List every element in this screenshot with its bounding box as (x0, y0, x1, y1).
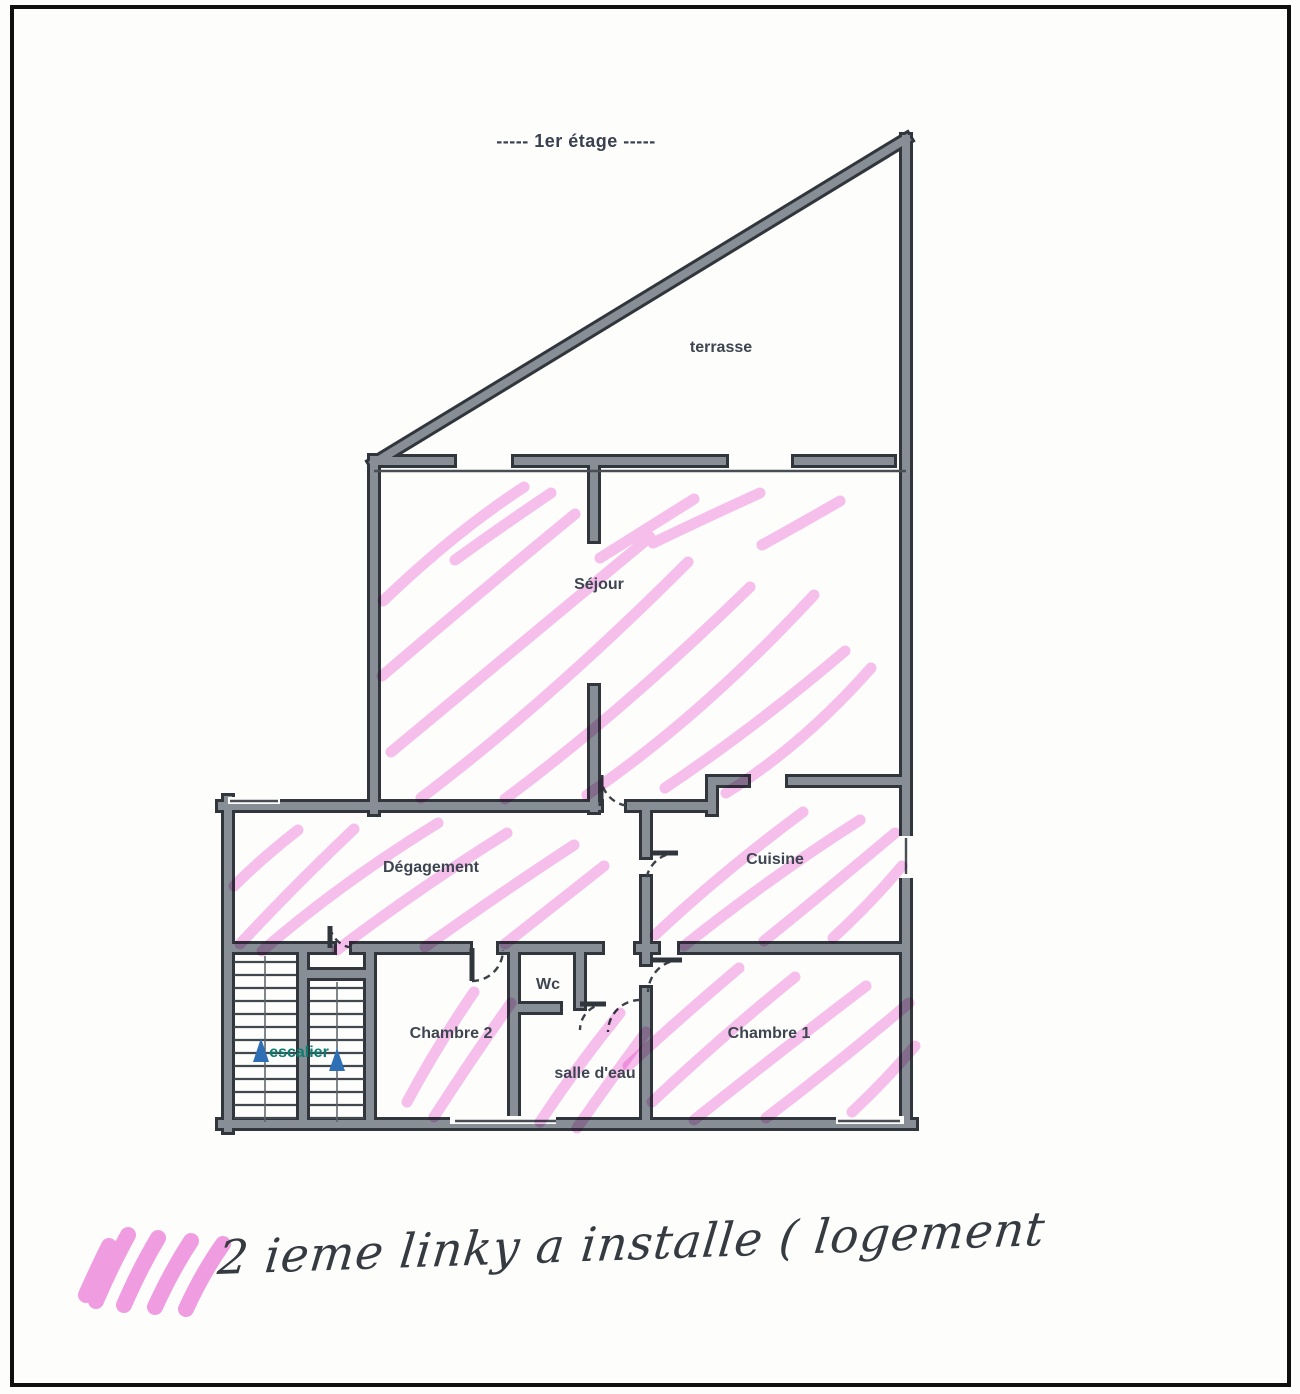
window-glazing-lines (230, 471, 906, 1121)
room-label-sejour: Séjour (574, 576, 624, 593)
highlighter-swatch (86, 1235, 223, 1309)
room-label-escalier: escalier (269, 1044, 329, 1061)
room-label-chambre2: Chambre 2 (410, 1025, 493, 1042)
highlighter-stroke-chambre2 (407, 992, 511, 1117)
room-label-chambre1: Chambre 1 (728, 1025, 811, 1042)
door-swing-arcs (330, 775, 682, 1032)
highlighter-stroke-sejour (382, 487, 871, 799)
highlighter-stroke-chambre1 (628, 968, 915, 1120)
walls (222, 139, 912, 1128)
highlighter-stroke-cuisine (655, 812, 902, 946)
scanned-floor-plan-page: ----- 1er étage ----- (0, 0, 1300, 1394)
doors (330, 775, 682, 1032)
floor-title: ----- 1er étage ----- (496, 131, 656, 151)
room-label-degagement: Dégagement (383, 859, 480, 876)
room-label-salle-deau: salle d'eau (554, 1065, 635, 1082)
room-label-terrasse: terrasse (690, 339, 752, 356)
room-label-cuisine: Cuisine (746, 851, 804, 868)
room-label-wc: Wc (536, 976, 560, 993)
highlighter-stroke-degagement (234, 823, 604, 951)
stairs-up-arrow-icon (329, 1048, 345, 1071)
walls-outline (222, 139, 912, 1128)
stairs-up-arrow-icon (253, 1038, 269, 1062)
floor-plan-drawing: ----- 1er étage ----- (0, 0, 1300, 1394)
